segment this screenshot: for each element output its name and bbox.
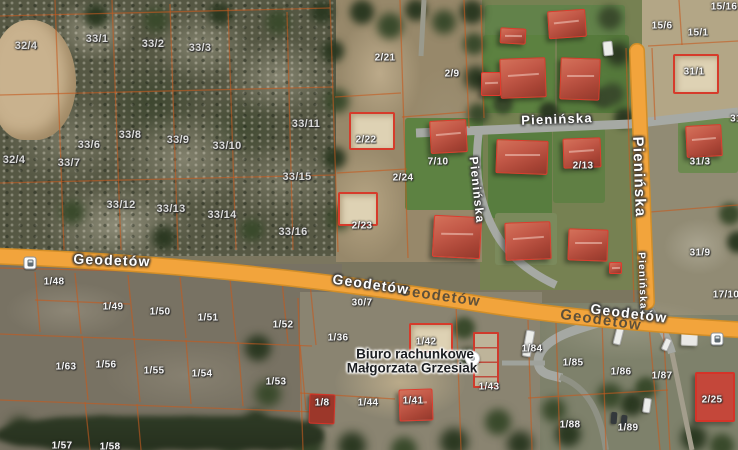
parcel-label: 1/55	[144, 366, 165, 377]
parcel-label: 1/85	[563, 358, 584, 369]
parcel-label: 33/14	[207, 209, 236, 221]
building-footprint	[349, 112, 395, 150]
truck-vehicle	[642, 398, 652, 414]
trees	[0, 0, 12, 12]
house	[685, 124, 723, 158]
parcel-label: 33/8	[119, 129, 142, 141]
car-vehicle	[611, 412, 618, 424]
parcel-label: 33/13	[156, 203, 185, 215]
terrain-sand-pit	[0, 20, 76, 140]
parcel-label: 33/6	[78, 139, 101, 151]
parcel-label: 31/9	[690, 248, 711, 259]
parcel-label: 33/11	[292, 118, 320, 130]
house	[495, 139, 548, 175]
dirt-path	[560, 377, 606, 450]
parcel-label: 33/15	[282, 171, 311, 183]
van-vehicle	[602, 41, 614, 57]
tree-band	[0, 416, 324, 450]
parcel-label: 1/52	[273, 320, 294, 331]
parcel-label: 1/86	[611, 367, 632, 378]
parcel-label: 1/53	[266, 377, 287, 388]
parcel-label: 1/51	[198, 313, 219, 324]
street-label: Pienińska	[629, 136, 649, 217]
bus-stop-icon[interactable]	[711, 333, 724, 346]
parcel-label: 1/49	[103, 302, 124, 313]
parcel-label: 33/1	[86, 33, 109, 45]
parcel-label: 33/9	[167, 134, 190, 146]
building	[681, 326, 699, 347]
satellite-map[interactable]: 32/433/133/233/333/633/833/933/1033/732/…	[0, 0, 738, 450]
parcel-label: 32/4	[15, 40, 38, 52]
street-label: Geodetów	[332, 271, 411, 298]
parcel-label: 1/56	[96, 360, 117, 371]
parcel-label: 2/21	[375, 53, 396, 64]
house	[432, 215, 482, 259]
house	[559, 57, 600, 100]
parcel-label: 2/9	[445, 69, 460, 80]
parcel-label: 33/3	[189, 42, 212, 54]
house	[562, 137, 601, 168]
parcel-label: 33/10	[212, 140, 241, 152]
parcel-label: 15/1	[688, 28, 709, 39]
parcel-label: 33/2	[142, 38, 165, 50]
building-footprint	[673, 54, 719, 94]
house	[481, 72, 501, 96]
parcel-label: 1/54	[192, 369, 213, 380]
street-label: Geodetów	[398, 282, 482, 310]
building	[308, 394, 335, 425]
house	[547, 9, 587, 40]
parcel-label: 1/58	[100, 442, 121, 450]
parcel-label: 33/12	[106, 199, 135, 211]
house	[567, 228, 608, 261]
parcel-label: 30/7	[352, 298, 373, 309]
parcel-label: 1/48	[44, 277, 65, 288]
parcel-label: 1/87	[652, 371, 673, 382]
parcel-label: 1/63	[56, 362, 77, 373]
parcel-label: 15/6	[652, 21, 673, 32]
car-vehicle	[620, 415, 627, 428]
parcel-label: 33/7	[58, 157, 81, 169]
parcel-label: 33/16	[278, 226, 307, 238]
bus-stop-icon[interactable]	[24, 257, 37, 270]
parcel-label: 1/57	[52, 441, 73, 450]
parcel-label: 1/50	[150, 307, 171, 318]
driveway	[672, 353, 692, 450]
house	[429, 119, 468, 154]
poi-name-line2[interactable]: Małgorzata Grzesiak	[347, 361, 478, 376]
shed	[609, 262, 622, 274]
house	[504, 221, 551, 261]
parcel-label: 32/4	[3, 154, 26, 166]
house	[499, 57, 546, 99]
road-pieninska	[637, 51, 647, 302]
house	[398, 388, 433, 421]
terrain-scrub-field	[0, 264, 342, 450]
parcel-label: 1/36	[328, 333, 349, 344]
bus-vehicle	[522, 329, 536, 357]
parcel-label: 1/88	[560, 420, 581, 431]
rubble-texture	[0, 0, 336, 256]
street-label: Geodetów	[73, 251, 151, 270]
parcel-label: 17/10	[713, 290, 738, 301]
rubble-texture	[0, 0, 336, 256]
poi-name-line1[interactable]: Biuro rachunkowe	[356, 347, 474, 362]
outbuilding	[500, 27, 527, 44]
terrain-rubble-field	[0, 0, 336, 256]
building-footprint	[338, 192, 378, 226]
parcel-label: 15/16	[711, 2, 738, 13]
road-pieninska-edge	[637, 51, 647, 302]
driveway	[421, 0, 424, 56]
building	[695, 372, 735, 422]
